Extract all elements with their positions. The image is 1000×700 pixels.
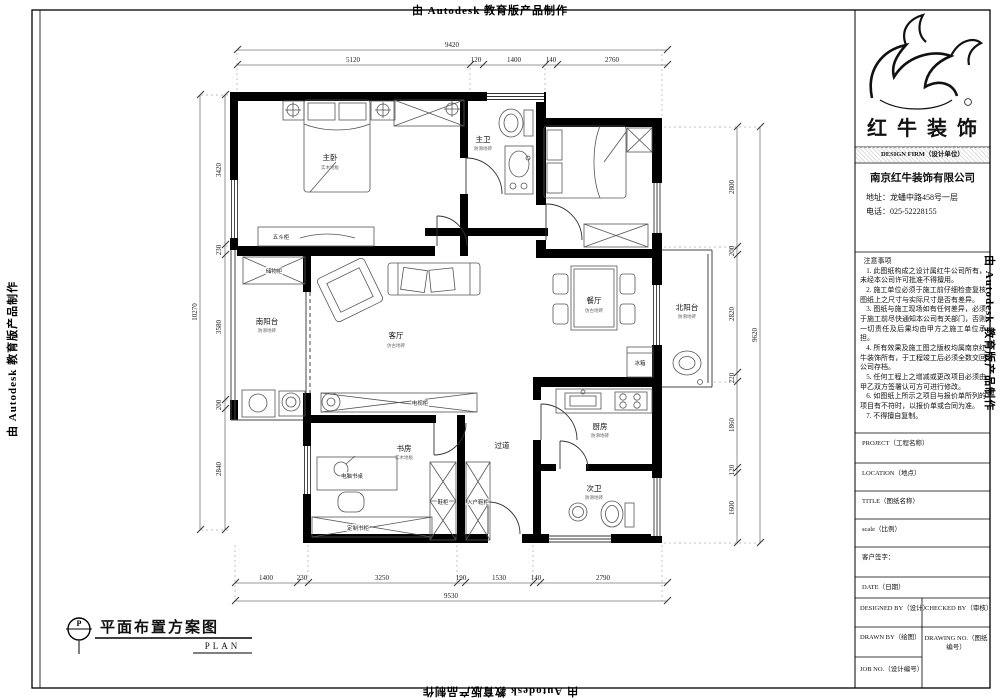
furniture-label-tvcabinet: 电视柜 (412, 399, 429, 407)
dim-top-total: 9420 (445, 41, 460, 49)
dim-right-seg: 120 (728, 464, 736, 475)
dim-top-seg: 1400 (507, 56, 522, 64)
dim-right-seg: 2820 (728, 307, 736, 322)
room-sub-master: 实木地板 (321, 164, 339, 171)
plan-title: 平面布置方案图 (100, 616, 219, 637)
note-item: 6. 如图纸上所示之项目与报价单所列的项目有不符时，以报价单或合同为准。 (860, 392, 986, 411)
dimension-lines (200, 50, 760, 601)
drawing-canvas: 9420 5120 120 1400 140 2760 9530 1400 23… (0, 0, 1000, 700)
dim-left-total: 10270 (191, 303, 199, 321)
dim-right-seg: 1600 (728, 501, 736, 516)
dim-bottom-seg: 140 (531, 574, 542, 582)
dim-right-total: 9620 (751, 328, 759, 343)
room-label-living: 客厅 (389, 330, 404, 340)
ceiling-lamp-icon (444, 101, 460, 117)
furniture-label-storage: 储物柜 (266, 267, 283, 275)
note-item: 4. 所有效果及施工图之版权均属南京红牛装饰所有，于工程竣工后必须全数交回公司存… (860, 344, 986, 373)
dim-left-seg: 3420 (215, 163, 223, 178)
field-project: PROJECT（工程名称） (862, 437, 928, 447)
room-labels: 主卧 实木地板 主卫 防滑地砖 客厅 仿古地砖 餐厅 仿古地砖 南阳台 防滑地砖… (256, 134, 699, 532)
company-phone: 电话：025-52228155 (866, 206, 937, 217)
field-client-signature: 客户签字： (862, 551, 895, 561)
field-designed-by: DESIGNED BY（设计） (860, 602, 929, 612)
dim-top-seg: 120 (471, 56, 482, 64)
room-label-northbalcony: 北阳台 (676, 302, 699, 312)
dim-bottom-seg: 230 (297, 574, 308, 582)
floorplan-walls (230, 92, 662, 543)
note-item: 1. 此图纸构成之设计属红牛公司所有，未经本公司许可批准不得擅用。 (860, 267, 986, 286)
dim-right-seg: 2800 (728, 180, 736, 195)
room-label-masterbath: 主卫 (476, 134, 491, 144)
room-label-kitchen: 厨房 (593, 421, 608, 431)
dim-bottom-seg: 1400 (259, 574, 274, 582)
room-sub-dining: 仿古地砖 (585, 307, 603, 314)
design-firm-bar: DESIGN FIRM（设计单位） (856, 147, 989, 162)
ceiling-lamp-icon (375, 102, 391, 118)
room-sub-secondbath: 防滑地砖 (585, 494, 603, 501)
dim-left-seg: 3580 (215, 320, 223, 335)
brand-name: 红牛装饰 (857, 112, 989, 141)
note-item: 3. 图纸与施工现场如有任何差异，必须于施工前尽快通知本公司有关部门，否则一切责… (860, 305, 986, 344)
dim-right-seg: 220 (728, 372, 736, 383)
dim-bottom-seg: 2790 (596, 574, 611, 582)
field-location: LOCATION（地点） (862, 467, 921, 477)
dim-bottom-seg: 3250 (375, 574, 390, 582)
room-label-study: 书房 (397, 443, 412, 453)
notes-block: 注意事项 1. 此图纸构成之设计属红牛公司所有，未经本公司许可批准不得擅用。 2… (860, 257, 986, 421)
room-sub-living: 仿古地砖 (387, 342, 405, 349)
room-sub-masterbath: 防滑地砖 (474, 145, 492, 152)
dim-left-seg: 2840 (215, 462, 223, 477)
extension-lines (200, 50, 760, 601)
dim-left-seg: 200 (215, 399, 223, 410)
bull-logo-icon (871, 15, 981, 109)
dim-bottom-seg: 1530 (492, 574, 507, 582)
dim-bottom-total: 9530 (444, 592, 459, 600)
room-label-dining: 餐厅 (587, 296, 602, 305)
note-item: 7. 不得擅自复制。 (860, 412, 986, 422)
field-drawing-no: DRAWING NO.（图纸编号） (924, 634, 988, 652)
field-title: TITLE（图纸名称） (862, 495, 919, 505)
field-checked-by: CHECKED BY（审核） (925, 602, 992, 612)
dim-right-seg: 200 (728, 245, 736, 256)
drawing-sheet: 由 Autodesk 教育版产品制作 由 Autodesk 教育版产品制作 由 … (0, 0, 1000, 700)
note-item: 5. 任何工程上之增减或更改项目必须由甲乙双方签署认可方可进行修改。 (860, 373, 986, 392)
furniture-label-chest: 五斗柜 (273, 233, 290, 241)
dim-left-seg: 230 (215, 244, 223, 255)
room-label-master: 主卧 (323, 152, 338, 162)
floorplan-windows (229, 91, 663, 544)
dim-top-seg: 2760 (605, 56, 620, 64)
sheet-border (32, 10, 990, 688)
room-label-southbalcony: 南阳台 (256, 316, 279, 326)
furniture-label-shoecab1: 鞋柜 (437, 498, 449, 506)
company-address: 地址：龙蟠中路458号一层 (866, 192, 958, 203)
room-sub-southbalcony: 防滑地砖 (258, 327, 276, 334)
room-sub-study: 实木地板 (395, 454, 413, 461)
field-scale: scale（比例） (862, 523, 901, 533)
field-job-no: JOB NO.（设计编号） (860, 663, 923, 673)
dim-top-seg: 140 (546, 56, 557, 64)
room-label-hallway: 过道 (495, 440, 510, 450)
room-sub-northbalcony: 防滑地砖 (678, 313, 696, 320)
company-name: 南京红牛装饰有限公司 (857, 170, 988, 185)
furniture-label-fridge: 冰箱 (634, 359, 646, 367)
plan-marker-letter: P (77, 619, 82, 628)
room-label-secondbath: 次卫 (587, 483, 602, 493)
furniture-label-desk: 电脑书桌 (341, 472, 364, 480)
furniture-label-shoecab2: 入户鞋柜 (467, 498, 490, 506)
dim-bottom-seg: 190 (456, 574, 467, 582)
notes-title: 注意事项 (860, 257, 986, 267)
dim-right-seg: 1860 (728, 418, 736, 433)
dimension-ticks (197, 46, 764, 604)
field-date: DATE（日期） (862, 581, 905, 591)
ceiling-lamp-icon (285, 102, 301, 118)
note-item: 2. 施工单位必须于施工前仔细检查复核图纸上之尺寸与实际尺寸是否有差异。 (860, 286, 986, 305)
furniture-label-bookcase: 定制书柜 (347, 524, 370, 532)
room-sub-kitchen: 防滑地砖 (591, 432, 609, 439)
dim-top-seg: 5120 (346, 56, 361, 64)
plan-title-en: PLAN (193, 641, 252, 651)
field-drawn-by: DRAWN BY（绘图） (860, 631, 921, 641)
